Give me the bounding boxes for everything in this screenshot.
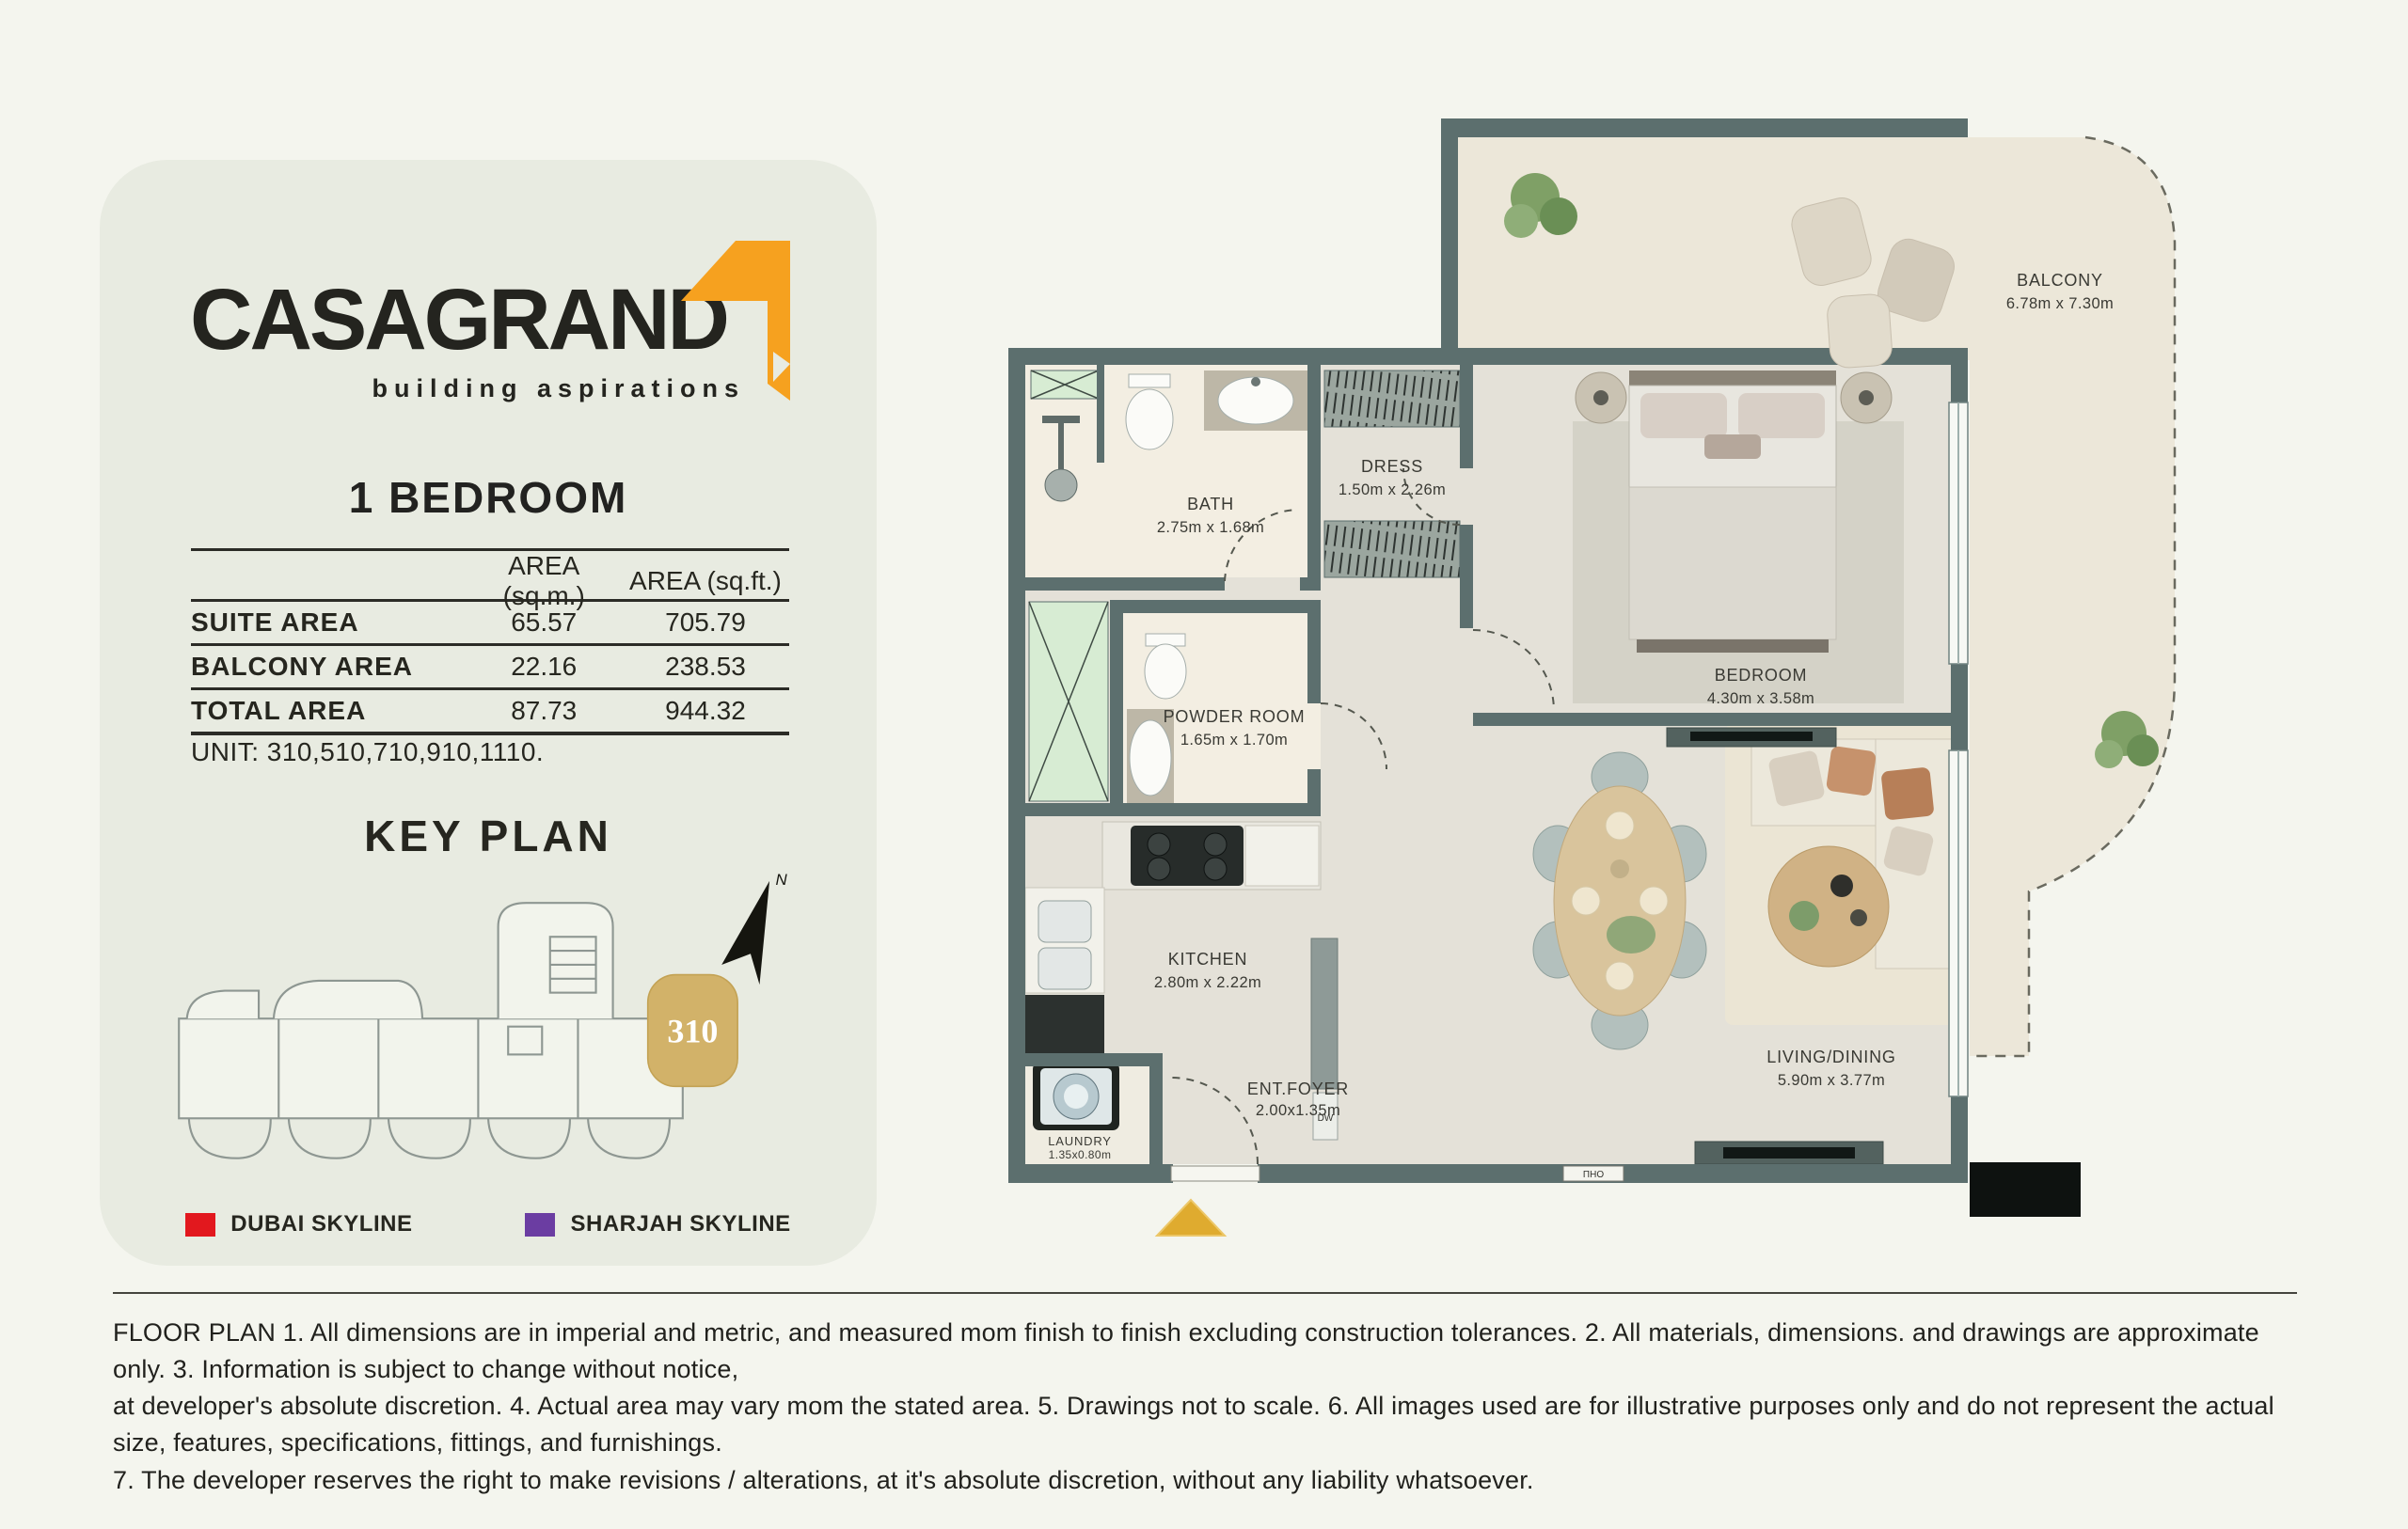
header-sqft: AREA (sq.ft.) [622, 566, 789, 596]
keyplan-legend: DUBAI SKYLINE SHARJAH SKYLINE [100, 1211, 877, 1237]
bed-bench [1637, 639, 1829, 653]
room-dims-balcony: 6.78m x 7.30m [2006, 295, 2114, 312]
room-dims-dress: 1.50m x 2.26m [1339, 481, 1446, 498]
row-sqm: 65.57 [467, 607, 622, 638]
column-block [1970, 1162, 2081, 1217]
kitchen-counter-side [1245, 826, 1319, 886]
row-sqft: 944.32 [622, 696, 789, 726]
brand-logo: CASAGRAND building aspirations [100, 160, 877, 423]
faucet [1251, 377, 1260, 386]
table-decor [1830, 875, 1853, 897]
floor-plan: DW [1008, 111, 2195, 1249]
tv-bedroom [1690, 732, 1813, 741]
kitchen-sink [1038, 901, 1091, 942]
wardrobe [1324, 521, 1460, 577]
brand-tagline: building aspirations [372, 374, 745, 403]
unit-numbers-line: UNIT: 310,510,710,910,1110. [191, 737, 544, 767]
room-dims-laundry: 1.35x0.80m [1049, 1148, 1112, 1161]
entrance-marker-triangle [1157, 1200, 1225, 1236]
brand-wordmark: CASAGRAND [190, 271, 727, 370]
centerpiece [1610, 859, 1629, 878]
table-row: SUITE AREA 65.57 705.79 [191, 602, 789, 646]
room-dims-bath: 2.75m x 1.68m [1157, 519, 1264, 536]
accent-pillow [1704, 434, 1761, 459]
row-label: TOTAL AREA [191, 696, 467, 726]
room-label-kitchen: KITCHEN [1168, 950, 1248, 969]
toilet [1126, 389, 1173, 449]
table-row: TOTAL AREA 87.73 944.32 [191, 690, 789, 735]
row-sqm: 87.73 [467, 696, 622, 726]
key-plan-drawing: 310 N [154, 867, 822, 1196]
disclaimer-line: 7. The developer reserves the right to m… [113, 1462, 2297, 1499]
pillow [1640, 393, 1727, 438]
row-sqm: 22.16 [467, 652, 622, 682]
toilet [1145, 644, 1186, 699]
fridge [1025, 995, 1104, 1053]
unit-info-card: CASAGRAND building aspirations 1 BEDROOM… [100, 160, 877, 1266]
room-dims-kitchen: 2.80m x 2.22m [1154, 974, 1261, 991]
lamp [1859, 390, 1874, 405]
kitchen-tall-cabinet [1311, 938, 1338, 1089]
area-table: AREA (sq.m.) AREA (sq.ft.) SUITE AREA 65… [191, 548, 789, 735]
kitchen-sink [1038, 948, 1091, 989]
disclaimer-line: at developer's absolute discretion. 4. A… [113, 1388, 2297, 1461]
pillow [1738, 393, 1825, 438]
shower-divider-wall [1097, 365, 1104, 463]
dubai-skyline-swatch [185, 1213, 215, 1237]
shower-bar [1042, 416, 1080, 423]
entrance-threshold [1171, 1166, 1259, 1181]
area-table-header: AREA (sq.m.) AREA (sq.ft.) [191, 548, 789, 602]
shower-head [1045, 469, 1077, 501]
legend-label: SHARJAH SKYLINE [570, 1211, 790, 1237]
room-dims-powder: 1.65m x 1.70m [1180, 732, 1288, 749]
row-sqft: 705.79 [622, 607, 789, 638]
key-plan-title: KEY PLAN [100, 811, 877, 861]
legend-item-sharjah: SHARJAH SKYLINE [525, 1211, 790, 1237]
bed-blanket [1629, 487, 1836, 639]
washer-drum-inner [1064, 1084, 1088, 1109]
row-sqft: 238.53 [622, 652, 789, 682]
room-label-foyer: ENT.FOYER [1247, 1080, 1349, 1098]
legend-label: DUBAI SKYLINE [230, 1211, 412, 1237]
lamp [1593, 390, 1608, 405]
powder-sink [1130, 720, 1171, 796]
room-dims-bedroom: 4.30m x 3.58m [1707, 690, 1814, 707]
room-dims-foyer: 2.00x1.35m [1256, 1102, 1340, 1119]
floor-plan-drawing: DW [1008, 111, 2195, 1249]
legend-item-dubai: DUBAI SKYLINE [185, 1211, 412, 1237]
room-label-dress: DRESS [1361, 457, 1423, 476]
wardrobe [1324, 370, 1460, 427]
tv-living [1723, 1147, 1855, 1159]
bed-headboard [1629, 370, 1836, 386]
table-row: BALCONY AREA 22.16 238.53 [191, 646, 789, 690]
room-label-bedroom: BEDROOM [1715, 666, 1808, 685]
room-label-laundry: LAUNDRY [1048, 1134, 1112, 1148]
disclaimer-line: FLOOR PLAN 1. All dimensions are in impe… [113, 1315, 2297, 1388]
room-label-powder: POWDER ROOM [1164, 707, 1306, 726]
table-leaf-decor [1607, 916, 1655, 954]
room-label-living: LIVING/DINING [1766, 1048, 1895, 1066]
room-dims-living: 5.90m x 3.77m [1778, 1072, 1885, 1089]
sharjah-skyline-swatch [525, 1213, 555, 1237]
entry-plate-tag: ПНО [1583, 1170, 1604, 1180]
keyplan-unit-number: 310 [667, 1013, 718, 1050]
room-label-balcony: BALCONY [2017, 271, 2103, 290]
room-label-bath: BATH [1187, 495, 1234, 513]
brochure-page: { "brand": { "name": "CASAGRAND", "tagli… [0, 0, 2408, 1529]
header-sqm: AREA (sq.m.) [467, 551, 622, 611]
north-arrow-icon: N [721, 871, 787, 985]
unit-type-title: 1 BEDROOM [100, 472, 877, 523]
table-decor [1850, 909, 1867, 926]
toilet-tank [1129, 374, 1170, 387]
hob [1131, 826, 1244, 886]
disclaimer: FLOOR PLAN 1. All dimensions are in impe… [113, 1292, 2297, 1499]
coffee-table [1768, 846, 1889, 967]
table-plant [1789, 901, 1819, 931]
north-label: N [775, 871, 787, 889]
row-label: SUITE AREA [191, 607, 467, 638]
row-label: BALCONY AREA [191, 652, 467, 682]
